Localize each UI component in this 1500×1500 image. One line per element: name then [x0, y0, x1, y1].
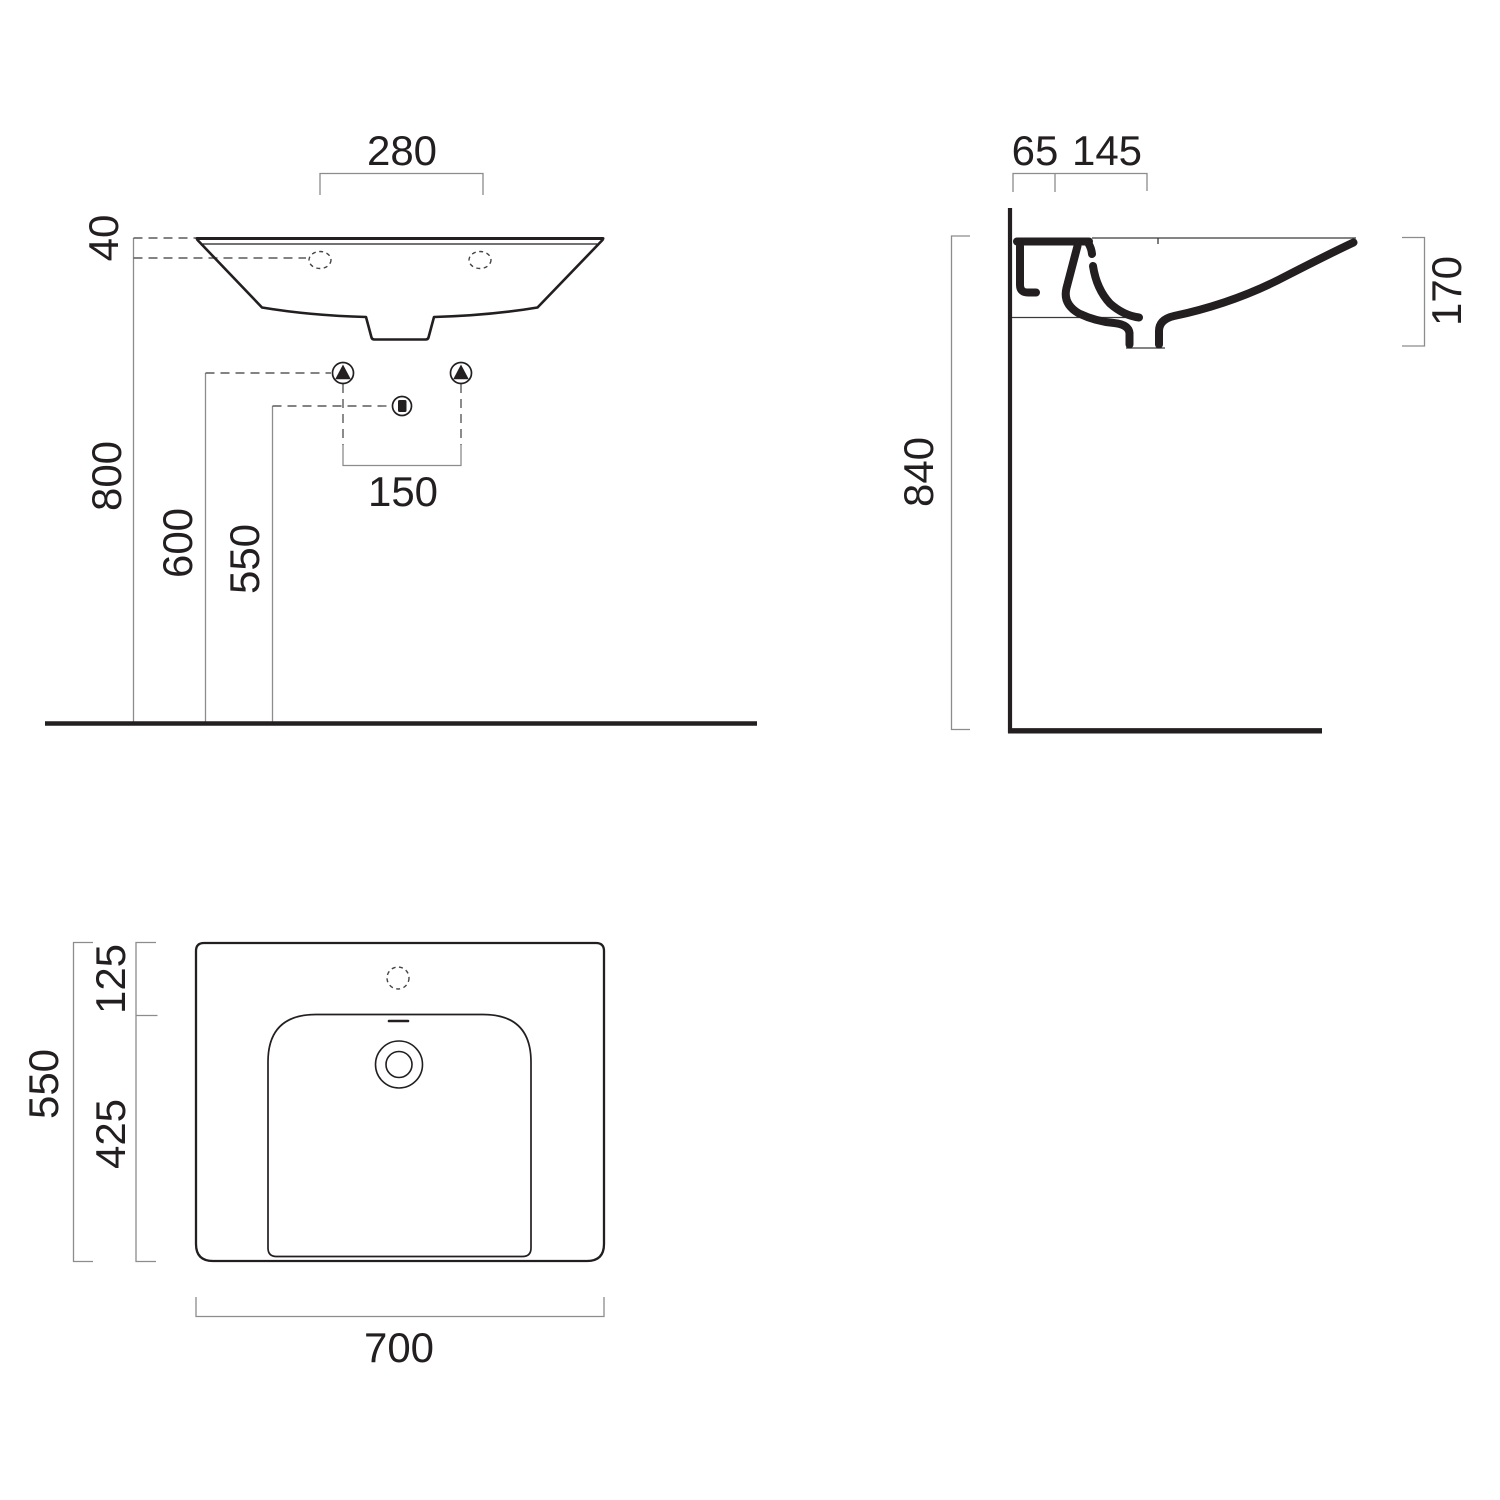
dim-label-840: 840: [898, 437, 940, 507]
waste-outlet-symbol: [393, 397, 412, 416]
dimension-bracket-150: [343, 445, 461, 466]
section-bowl-back: [1093, 266, 1139, 318]
dim-label-700: 700: [364, 1327, 434, 1369]
section-overflow-stub: [1089, 244, 1093, 255]
side-section-view: [952, 174, 1425, 734]
dim-label-550-front: 550: [224, 524, 266, 594]
dim-label-550-plan: 550: [23, 1049, 65, 1119]
front-basin-outline: [197, 239, 603, 340]
dim-label-65: 65: [1012, 130, 1059, 172]
section-bowl-front-sweep: [1159, 243, 1354, 345]
dimension-bracket-125-425: [136, 943, 156, 1262]
water-supply-symbols: [333, 363, 472, 384]
tap-hole-right-icon: [469, 252, 491, 269]
section-mount-hook: [1020, 246, 1036, 293]
tap-hole-left-icon: [309, 252, 331, 269]
dim-label-150: 150: [368, 471, 438, 513]
dimension-bracket-700: [196, 1297, 604, 1317]
front-dashed-leaders: [134, 238, 462, 445]
dim-label-425: 425: [90, 1099, 132, 1169]
drawing-linework: [0, 0, 1500, 1500]
dim-label-40: 40: [83, 215, 125, 262]
drain-outer-circle: [376, 1041, 423, 1088]
dim-label-170: 170: [1426, 256, 1468, 326]
front-tap-holes: [309, 252, 491, 269]
dim-label-125: 125: [90, 944, 132, 1014]
plan-tap-hole-icon: [387, 967, 409, 989]
dimension-bracket-170: [1402, 238, 1425, 347]
plan-drain: [376, 1041, 423, 1088]
dim-label-600: 600: [157, 508, 199, 578]
dim-label-145: 145: [1072, 130, 1142, 172]
dimension-bracket-840: [952, 236, 971, 730]
supply-right-triangle-icon: [453, 365, 469, 380]
dimension-bracket-280: [320, 174, 483, 196]
front-elevation-view: [45, 174, 757, 724]
plan-view: [74, 943, 605, 1317]
dimension-bracket-65-145: [1013, 174, 1147, 193]
ceramic-section: [1017, 242, 1354, 345]
basin-bowl-outline: [198, 240, 603, 340]
plan-outer-outline: [196, 943, 604, 1261]
drain-inner-circle: [386, 1052, 412, 1078]
technical-drawing-canvas: 280 40 800 600 550 150 65 145 840 170 12…: [0, 0, 1500, 1500]
waste-square-icon: [398, 400, 407, 412]
dim-label-800: 800: [86, 441, 128, 511]
section-rear-channel-wall: [1066, 246, 1130, 345]
dim-label-280: 280: [367, 130, 437, 172]
front-dimension-lines: [134, 174, 484, 724]
supply-left-triangle-icon: [335, 365, 351, 380]
